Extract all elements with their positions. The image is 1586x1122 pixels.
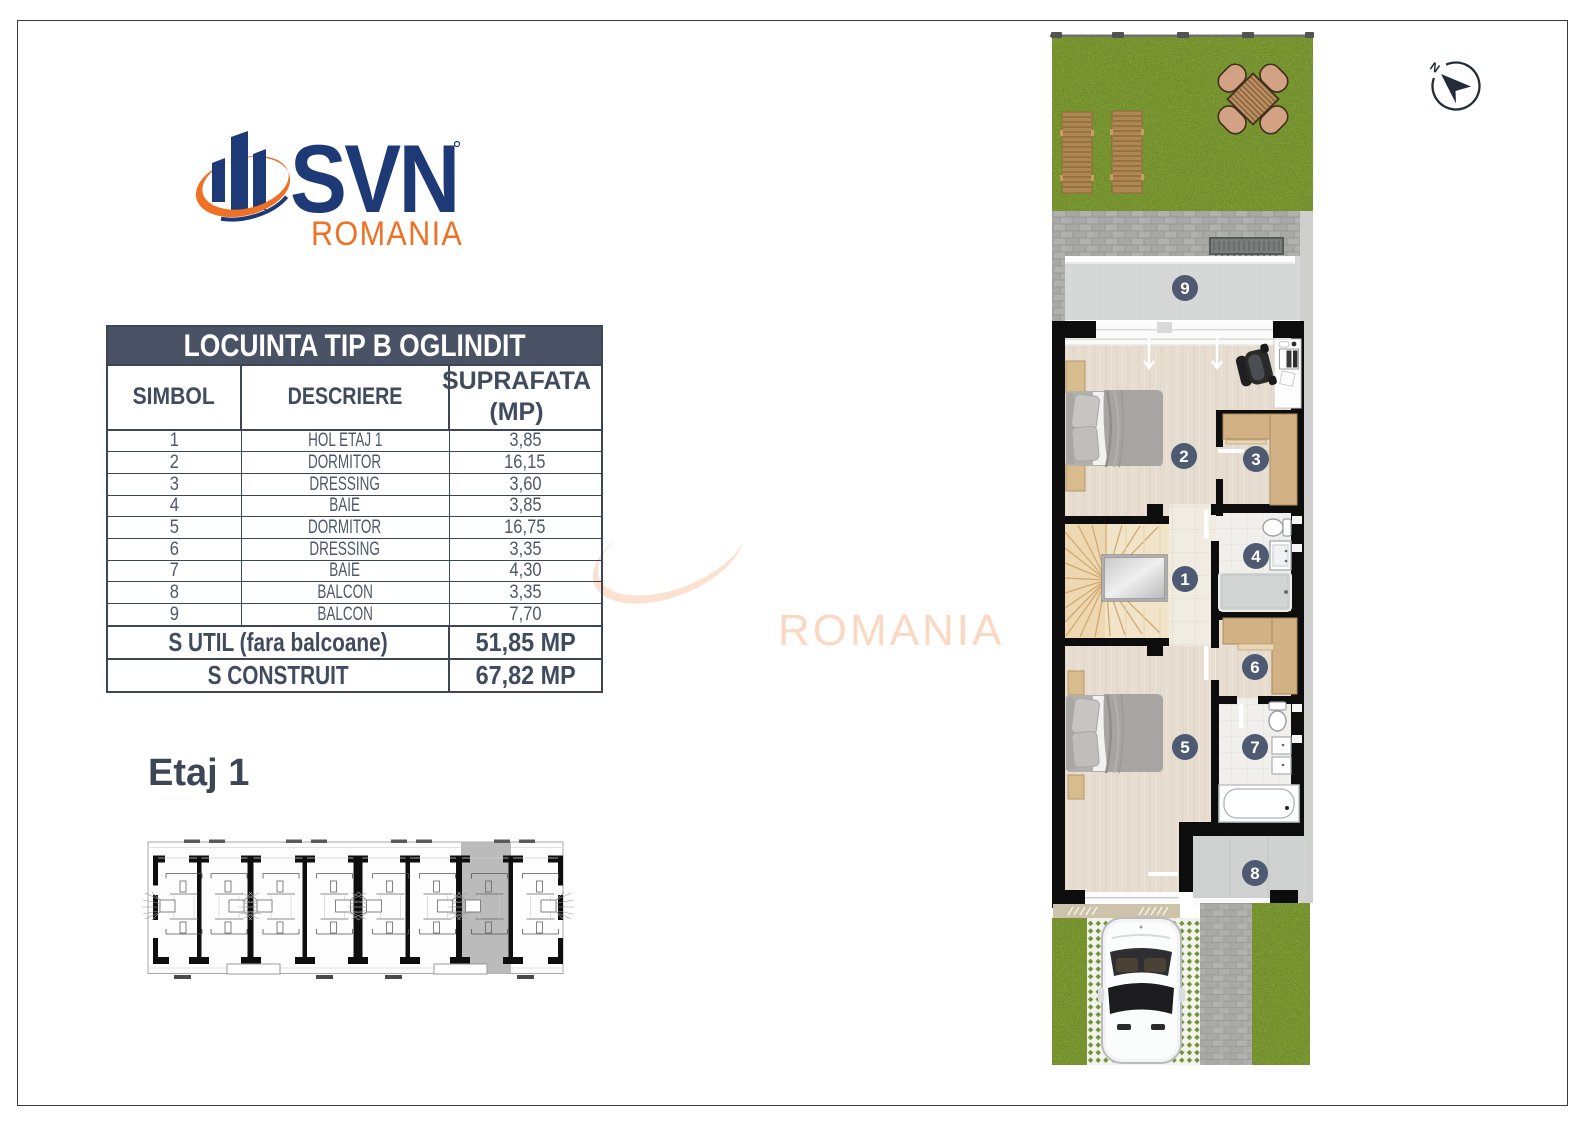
svg-text:1: 1 <box>1180 570 1189 589</box>
svg-text:9: 9 <box>1180 279 1189 298</box>
svg-text:ROMANIA: ROMANIA <box>778 606 1004 655</box>
svg-text:8: 8 <box>1250 864 1259 883</box>
svg-text:2: 2 <box>1179 447 1188 466</box>
svg-text:5: 5 <box>1180 738 1189 757</box>
svg-text:N: N <box>1427 59 1442 75</box>
svg-text:3: 3 <box>1251 450 1260 469</box>
svg-text:4: 4 <box>1251 547 1261 566</box>
svg-text:6: 6 <box>1250 658 1259 677</box>
svg-text:7: 7 <box>1250 738 1259 757</box>
svg-text:ROMANIA: ROMANIA <box>311 215 463 253</box>
